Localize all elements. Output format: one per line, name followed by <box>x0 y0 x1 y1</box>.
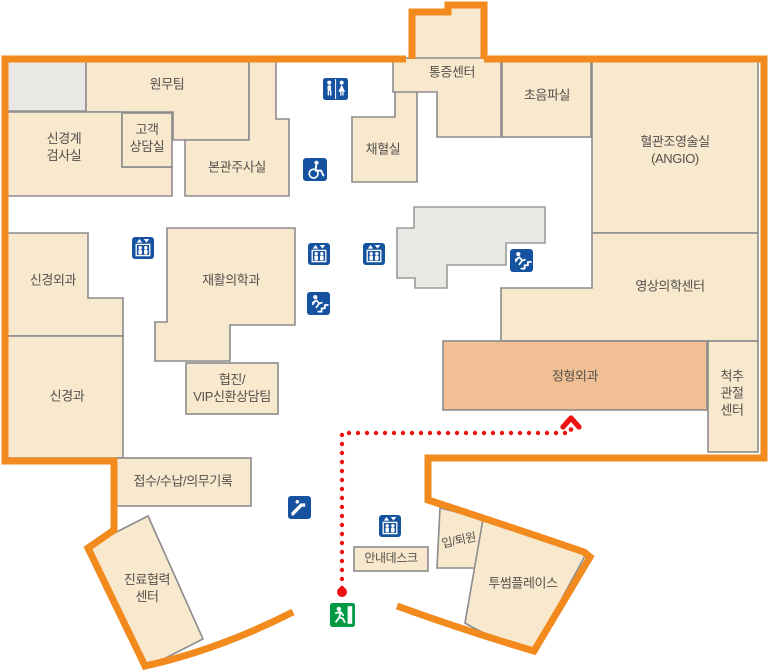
hospital-floor-map: 원무팀 신경계 검사실 고객 상담실 본관주사실 채혈실 통증센터 초음파실 혈… <box>0 0 772 670</box>
room-blood-collection <box>352 89 417 182</box>
label-info-desk: 안내데스크 <box>364 551 417 567</box>
elevator-icon-1 <box>132 237 154 259</box>
restroom-icon <box>323 78 348 100</box>
wheelchair-icon <box>303 158 327 181</box>
stairs-icon-2 <box>510 249 533 272</box>
stairs-icon-1 <box>307 292 330 315</box>
room-rehab-medicine <box>155 228 295 361</box>
room-unlabeled-core <box>397 207 545 288</box>
room-imaging-center <box>501 233 758 341</box>
room-unlabeled-corner <box>4 57 86 111</box>
label-admin-team: 원무팀 <box>150 77 185 94</box>
label-pain-center: 통증센터 <box>429 65 475 82</box>
label-main-injection: 본관주사실 <box>208 160 266 177</box>
elevator-icon-2 <box>308 243 330 265</box>
label-reception: 접수/수납/의무기록 <box>134 474 233 491</box>
label-blood-collection: 채혈실 <box>366 142 401 159</box>
label-twosome-place: 투썸플레이스 <box>488 576 557 593</box>
label-angio: 혈관조영술실 (ANGIO) <box>640 134 709 168</box>
label-neurosurgery: 신경외과 <box>30 273 76 290</box>
label-ultrasound: 초음파실 <box>524 88 570 105</box>
route-arrow-up <box>563 418 579 427</box>
label-neurology: 신경과 <box>50 389 85 406</box>
label-neuro-exam: 신경계 검사실 <box>47 131 82 165</box>
label-orthopedics: 정형외과 <box>552 369 598 386</box>
escalator-icon <box>288 496 311 519</box>
route-start-dot <box>337 587 347 597</box>
label-care-coop: 진료협력 센터 <box>124 572 170 606</box>
elevator-icon-3 <box>363 243 385 265</box>
elevator-icon-4 <box>379 515 401 537</box>
label-customer-consult: 고객 상담실 <box>130 122 165 156</box>
floor-map-svg <box>0 0 772 670</box>
label-imaging-center: 영상의학센터 <box>635 279 704 296</box>
emergency-exit-icon <box>330 603 355 627</box>
label-spine-joint: 척추 관절 센터 <box>720 369 743 420</box>
label-vip-consult: 협진/ VIP신환상담팀 <box>193 372 271 406</box>
route-arrow-dot <box>569 427 574 432</box>
label-rehab-medicine: 재활의학과 <box>202 273 260 290</box>
